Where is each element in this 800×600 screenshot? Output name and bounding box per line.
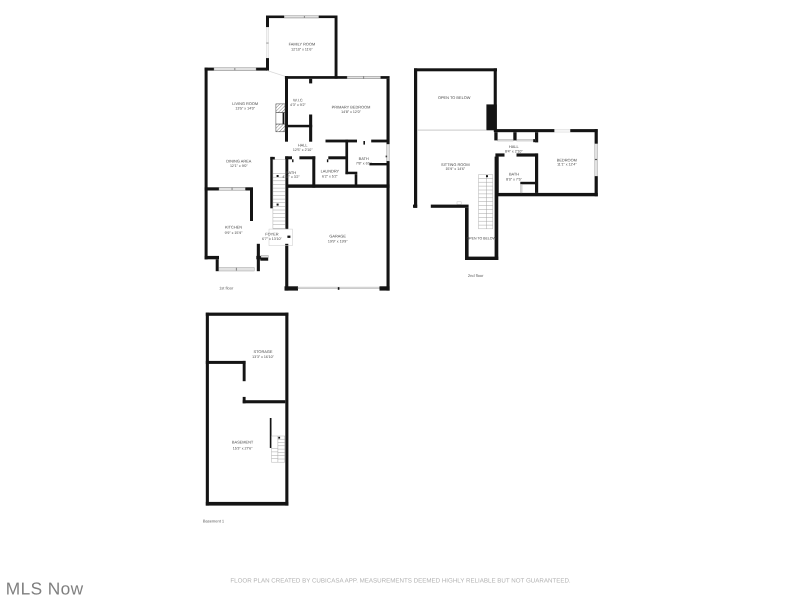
svg-text:BASEMENT: BASEMENT — [232, 440, 254, 445]
svg-text:6'7" x 13'10": 6'7" x 13'10" — [262, 237, 282, 241]
svg-text:HALL: HALL — [509, 144, 520, 149]
svg-text:OPEN TO BELOW: OPEN TO BELOW — [438, 95, 471, 100]
svg-text:KITCHEN: KITCHEN — [225, 224, 242, 229]
svg-text:BATH: BATH — [509, 171, 519, 176]
svg-text:15'9" x 14'6": 15'9" x 14'6" — [445, 167, 465, 171]
svg-text:Basement 1: Basement 1 — [203, 518, 225, 523]
svg-text:13'5" x 14'0": 13'5" x 14'0" — [235, 107, 255, 111]
svg-text:STORAGE: STORAGE — [254, 349, 273, 354]
svg-text:1st floor: 1st floor — [219, 285, 234, 290]
svg-text:12'5" x 2'10": 12'5" x 2'10" — [293, 148, 313, 152]
svg-text:12'1" x 9'0": 12'1" x 9'0" — [230, 164, 248, 168]
svg-text:4'11" x 3'2": 4'11" x 3'2" — [282, 175, 300, 179]
svg-text:LAUNDRY: LAUNDRY — [321, 169, 340, 174]
svg-text:6'2" x 5'2": 6'2" x 5'2" — [322, 174, 338, 178]
svg-text:PRIMARY BEDROOM: PRIMARY BEDROOM — [332, 105, 371, 110]
svg-text:8'0" x 7'5": 8'0" x 7'5" — [506, 177, 522, 181]
svg-text:MLS Now: MLS Now — [6, 579, 84, 599]
svg-text:19'9" x 19'9": 19'9" x 19'9" — [328, 239, 348, 243]
svg-text:BATH: BATH — [359, 156, 369, 161]
svg-text:7'8" x 6'5": 7'8" x 6'5" — [356, 162, 372, 166]
svg-text:13'3" x 16'10": 13'3" x 16'10" — [252, 355, 274, 359]
svg-text:4'3" x 9'2": 4'3" x 9'2" — [290, 103, 306, 107]
svg-text:W.I.C: W.I.C — [293, 97, 303, 102]
svg-text:15'3" x 27'6": 15'3" x 27'6" — [233, 446, 253, 450]
svg-text:12'10" x 11'6": 12'10" x 11'6" — [291, 47, 313, 51]
svg-text:FOYER: FOYER — [265, 232, 279, 237]
svg-text:LIVING ROOM: LIVING ROOM — [232, 101, 258, 106]
svg-text:GARAGE: GARAGE — [329, 233, 346, 238]
svg-text:9'9" x 15'9": 9'9" x 15'9" — [225, 231, 243, 235]
svg-text:DINING AREA: DINING AREA — [226, 158, 251, 163]
svg-text:FLOOR PLAN CREATED BY CUBICASA: FLOOR PLAN CREATED BY CUBICASA APP. MEAS… — [230, 578, 571, 585]
svg-text:8'4" x 2'10": 8'4" x 2'10" — [505, 150, 523, 154]
svg-text:14'8" x 12'0": 14'8" x 12'0" — [341, 110, 361, 114]
svg-text:HALL: HALL — [298, 142, 309, 147]
svg-text:FAMILY ROOM: FAMILY ROOM — [289, 41, 316, 46]
svg-text:BEDROOM: BEDROOM — [557, 157, 577, 162]
svg-text:OPEN TO BELOW: OPEN TO BELOW — [467, 237, 497, 241]
svg-text:11'1" x 12'4": 11'1" x 12'4" — [557, 163, 577, 167]
svg-text:2nd floor: 2nd floor — [468, 273, 484, 278]
